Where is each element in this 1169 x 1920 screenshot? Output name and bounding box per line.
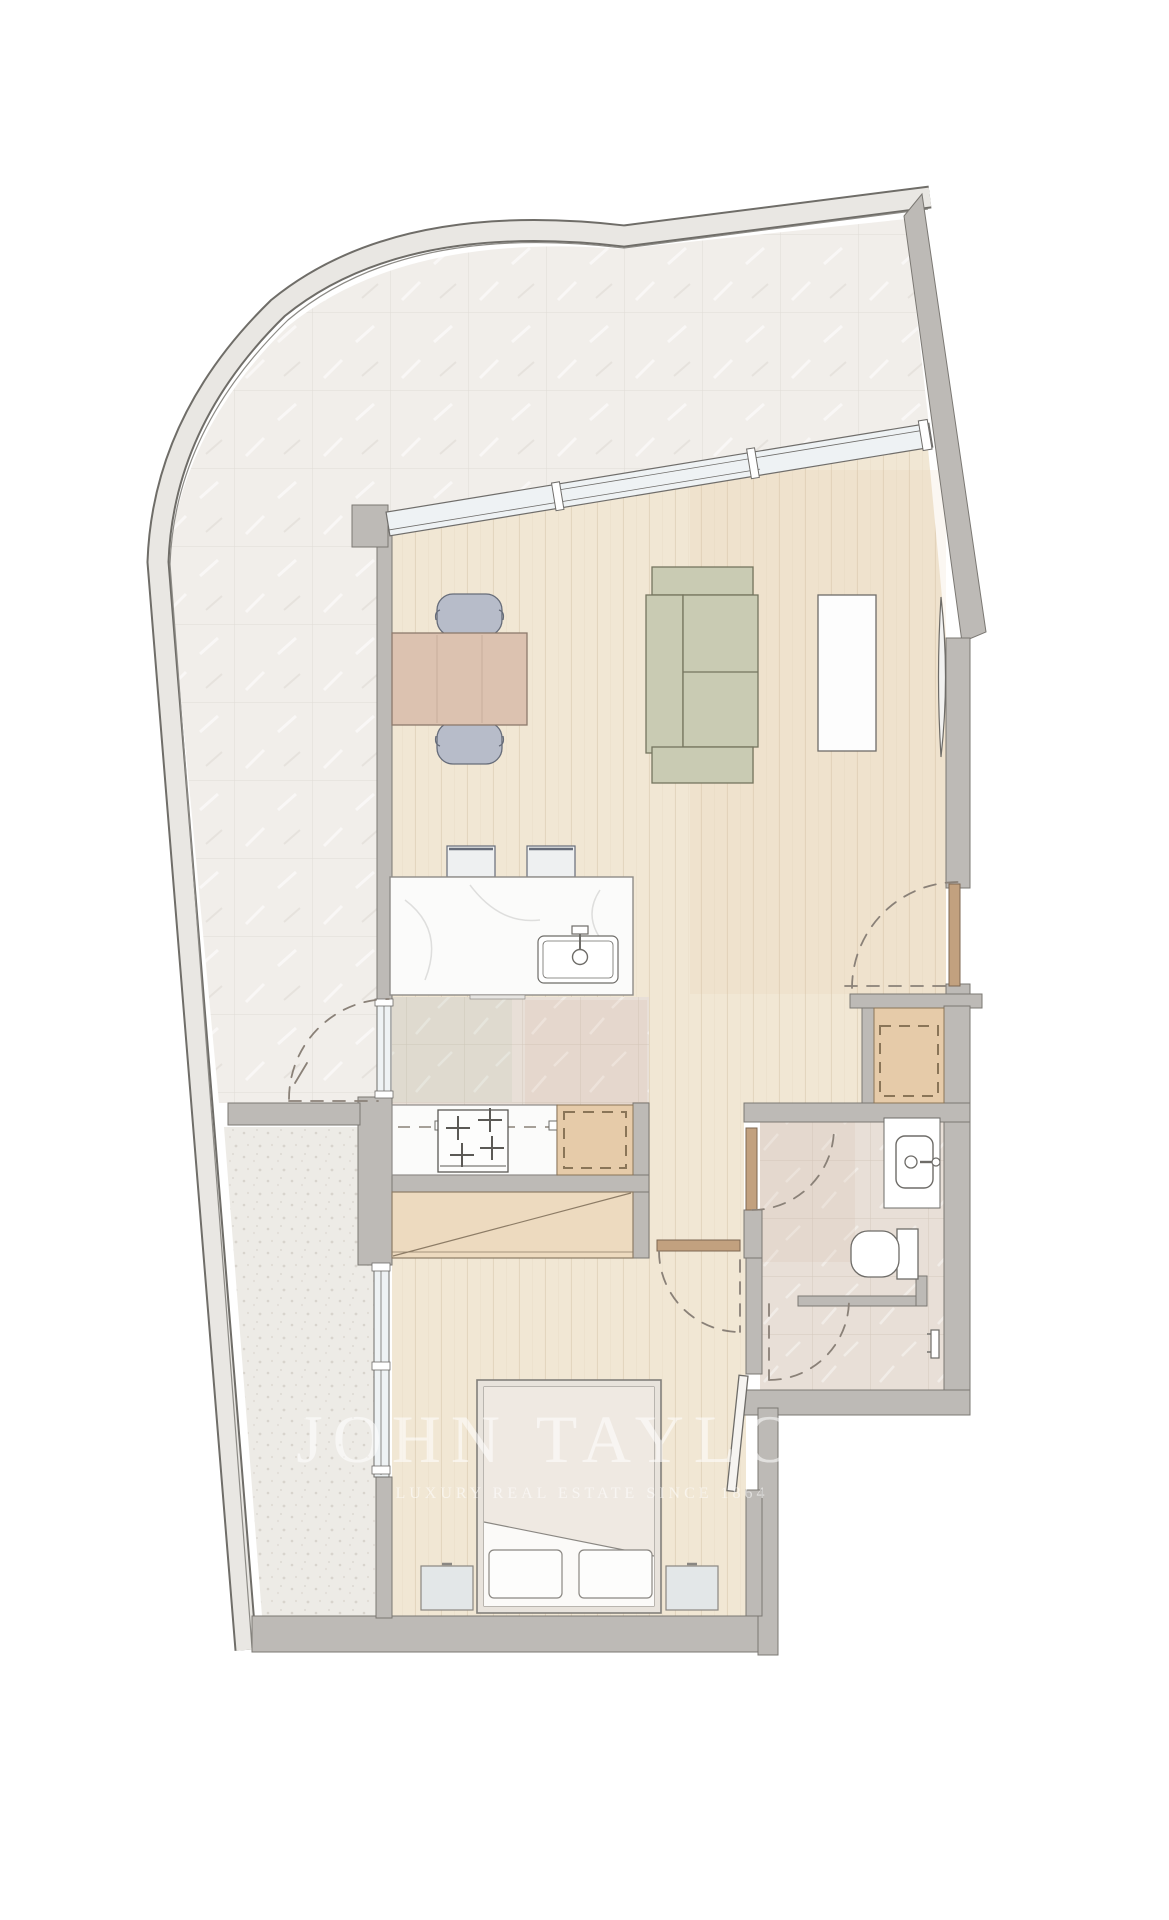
kitchen-floor-wash2: [525, 1000, 647, 1120]
dining-chair-bottom: [437, 722, 502, 764]
window-left-cap: [352, 505, 388, 547]
wall-left-lower: [376, 1477, 392, 1618]
watermark-line2: LUXURY REAL ESTATE SINCE 1864: [395, 1485, 768, 1502]
tv-console: [818, 595, 876, 751]
cooktop: [438, 1108, 508, 1172]
washbasin: [896, 1136, 940, 1188]
pillow-left: [489, 1550, 562, 1598]
toilet: [851, 1229, 918, 1279]
nightstand-right: [666, 1566, 718, 1610]
wall-nook-left: [862, 1008, 874, 1103]
floor-plan-page: JOHN TAYLOR LUXURY REAL ESTATE SINCE 186…: [0, 0, 1169, 1920]
wall-bedroom-right-b: [746, 1490, 762, 1616]
sofa: [646, 567, 758, 783]
wall-bedroom-right-a: [746, 1258, 762, 1374]
sofa-top-arm: [652, 567, 753, 595]
appliance-cabinet: [557, 1105, 633, 1175]
hall-cupboard: [874, 1008, 944, 1103]
bar-stool-2: [527, 846, 575, 877]
bar-stool-1: [447, 846, 495, 877]
bathroom-floor-wash: [760, 1122, 855, 1262]
faucet: [573, 950, 588, 965]
nightstand-left: [421, 1566, 473, 1610]
watermark-line1: JOHN TAYLOR: [296, 1401, 860, 1477]
wall-bottom: [252, 1616, 758, 1652]
wall-right-mid: [946, 638, 970, 888]
floor-plan: JOHN TAYLOR LUXURY REAL ESTATE SINCE 186…: [0, 0, 1169, 1920]
wall-terrace-divider: [228, 1103, 360, 1125]
sofa-seat: [683, 595, 758, 747]
wall-left-pillar: [358, 1097, 392, 1265]
dining-chair-top: [437, 594, 502, 636]
wall-shower-stub: [916, 1276, 927, 1306]
island-ledge: [470, 995, 525, 999]
wall-counter-back: [392, 1175, 649, 1192]
dining-table: [392, 633, 527, 725]
wall-bath-right: [944, 1006, 970, 1415]
sofa-bottom-arm: [652, 747, 753, 783]
faucet-handle: [572, 926, 588, 934]
pillow-right: [579, 1550, 652, 1598]
sofa-chaise: [646, 595, 683, 753]
wall-bath-left: [744, 1210, 762, 1258]
terrace-door-glazing: [375, 999, 393, 1098]
wall-shower-partition: [798, 1296, 927, 1306]
kitchen-floor-wash: [392, 997, 512, 1102]
kitchen-counter-group: [392, 1105, 633, 1175]
wardrobe-closet: [392, 1192, 633, 1258]
